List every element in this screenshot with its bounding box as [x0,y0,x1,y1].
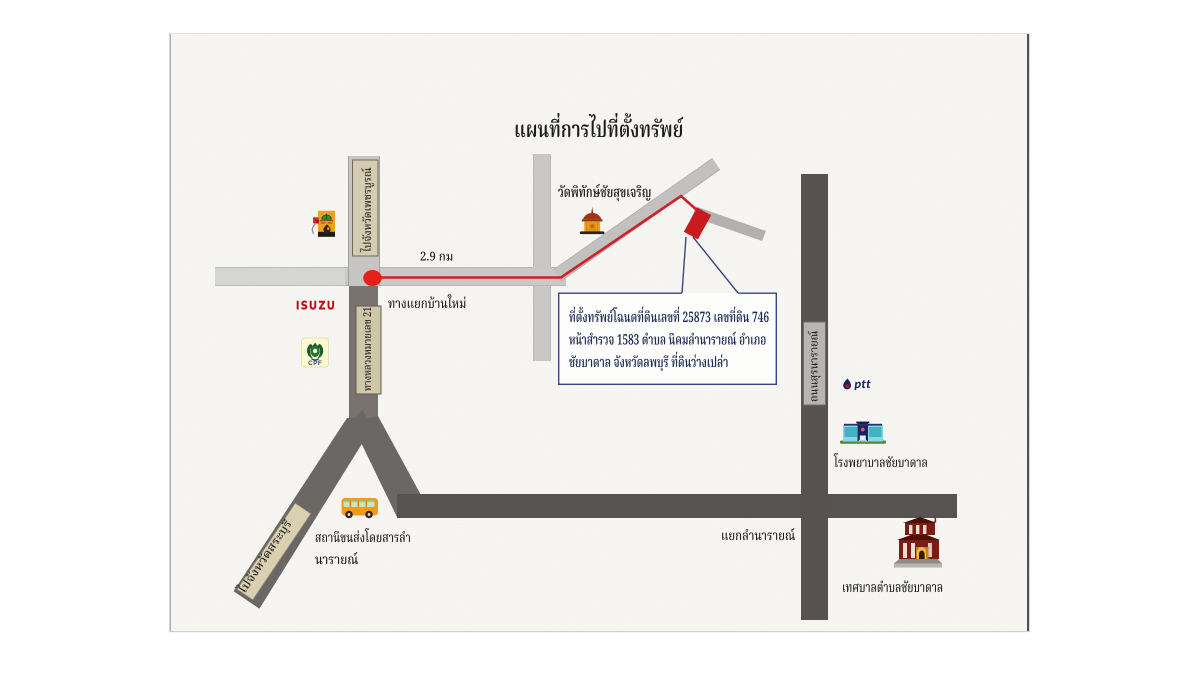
svg-text:CPF: CPF [308,360,322,367]
